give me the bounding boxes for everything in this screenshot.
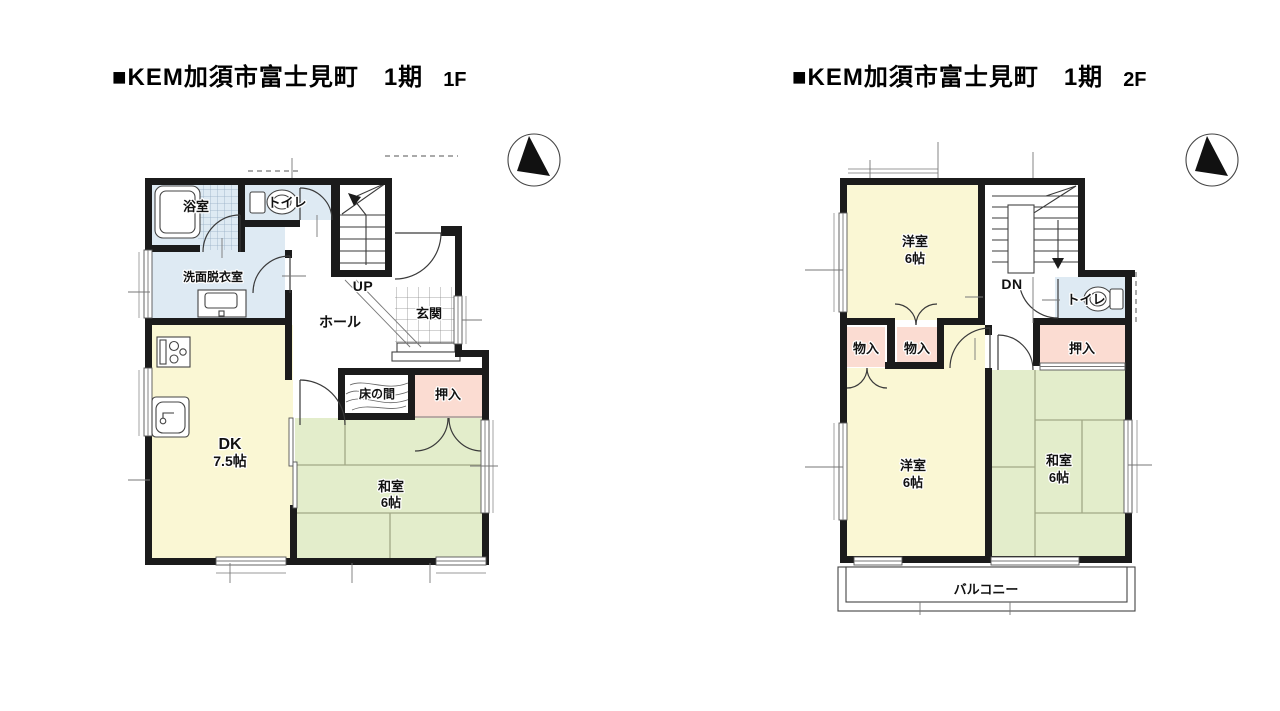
label-storage1: 物入 <box>853 341 879 356</box>
label-balcony: バルコニー <box>954 582 1019 597</box>
label-west-top-size: 6帖 <box>905 251 925 266</box>
title-1f: ■KEM加須市富士見町 1期 1F <box>112 57 467 92</box>
label-stairs-dn: DN <box>1001 276 1022 292</box>
title-1f-text: ■KEM加須市富士見町 1期 <box>112 57 423 92</box>
stairs-2f <box>992 186 1078 273</box>
label-west-bottom-size: 6帖 <box>903 475 923 490</box>
stairs-1f <box>340 183 386 265</box>
label-bath: 浴室 <box>183 199 209 214</box>
label-dk-size: 7.5帖 <box>213 453 246 469</box>
title-1f-floor: 1F <box>443 69 466 92</box>
label-closet-1f: 押入 <box>435 387 461 402</box>
label-washitsu-1f: 和室 <box>378 479 404 494</box>
label-washitsu-2f: 和室 <box>1046 453 1072 468</box>
kitchen-sink-icon <box>152 397 189 437</box>
label-washitsu-2f-size: 6帖 <box>1049 470 1069 485</box>
title-2f: ■KEM加須市富士見町 1期 2F <box>792 57 1147 92</box>
compass-2f <box>1186 134 1238 186</box>
label-west-top: 洋室 <box>902 234 928 249</box>
title-2f-text: ■KEM加須市富士見町 1期 <box>792 57 1103 92</box>
label-washroom: 洗面脱衣室 <box>183 269 243 284</box>
label-entrance: 玄関 <box>416 306 442 321</box>
label-stairs-up: UP <box>353 278 373 294</box>
floorplan-sheet: ■KEM加須市富士見町 1期 1F ■KEM加須市富士見町 1期 2F <box>0 0 1280 711</box>
up-arrow <box>348 193 366 265</box>
label-west-bottom: 洋室 <box>900 458 926 473</box>
label-washitsu-1f-size: 6帖 <box>381 495 401 510</box>
label-storage2: 物入 <box>904 341 930 356</box>
label-toilet-2f: トイレ <box>1066 292 1105 307</box>
label-tokonoma: 床の間 <box>359 386 395 401</box>
label-hall: ホール <box>319 314 361 330</box>
title-2f-floor: 2F <box>1123 69 1146 92</box>
label-toilet-1f: トイレ <box>267 195 306 210</box>
compass-1f <box>508 134 560 186</box>
stove-icon <box>157 337 190 367</box>
washbasin-icon <box>198 290 246 317</box>
room-washroom-ext <box>240 227 285 252</box>
label-dk: DK <box>218 436 242 453</box>
label-closet-2f: 押入 <box>1069 341 1095 356</box>
floorplan-1f: 浴室 トイレ 洗面脱衣室 ホール UP 玄関 DK 7.5帖 床の間 押入 和室… <box>120 120 590 605</box>
floorplan-2f: 洋室 6帖 DN トイレ 物入 物入 押入 洋室 6帖 和室 6帖 バルコニー <box>790 120 1255 630</box>
